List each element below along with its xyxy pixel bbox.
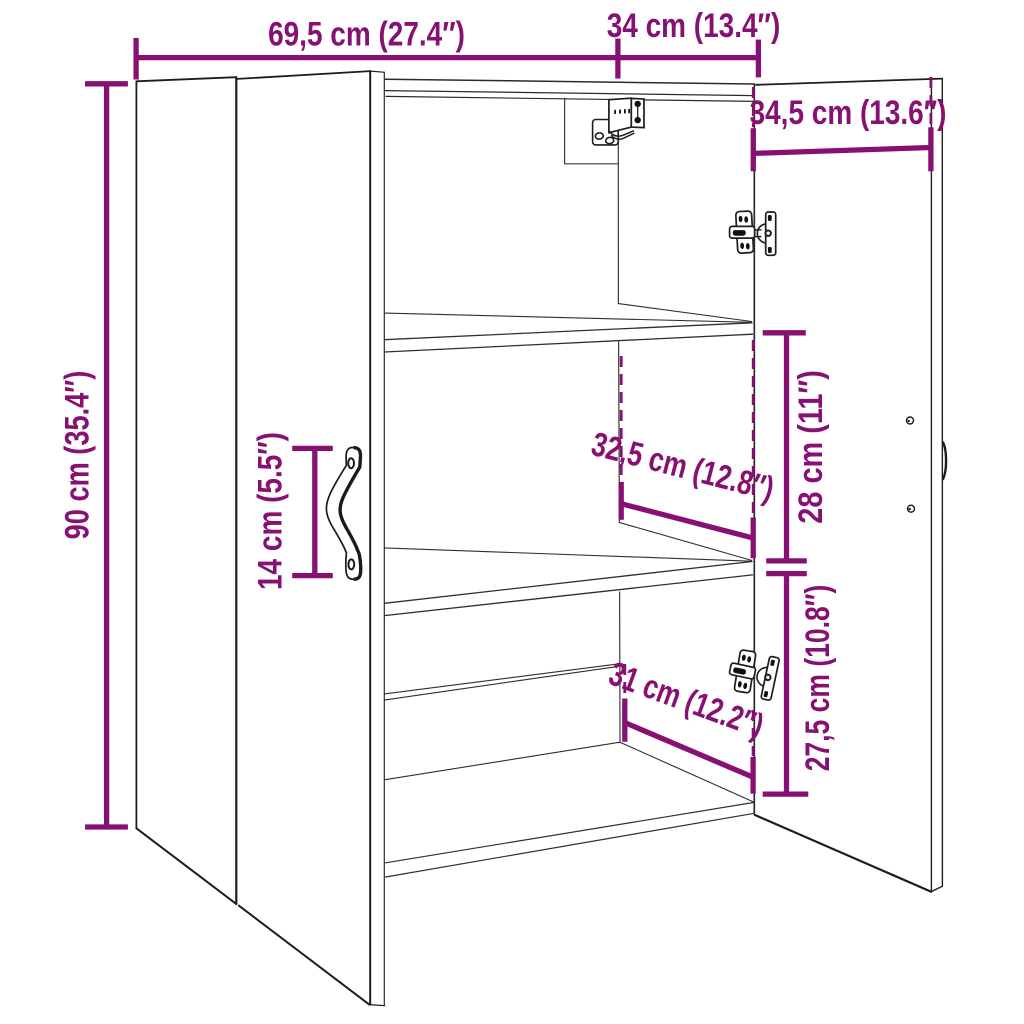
svg-text:28 cm (11″): 28 cm (11″): [791, 370, 830, 524]
svg-text:27,5 cm (10.8″): 27,5 cm (10.8″): [799, 585, 837, 772]
svg-text:34,5 cm (13.6″): 34,5 cm (13.6″): [750, 94, 947, 132]
svg-text:90 cm (35.4″): 90 cm (35.4″): [58, 371, 97, 540]
svg-text:14 cm (5.5″): 14 cm (5.5″): [251, 432, 289, 590]
svg-text:69,5 cm (27.4″): 69,5 cm (27.4″): [268, 15, 465, 53]
svg-text:34 cm (13.4″): 34 cm (13.4″): [607, 6, 781, 44]
